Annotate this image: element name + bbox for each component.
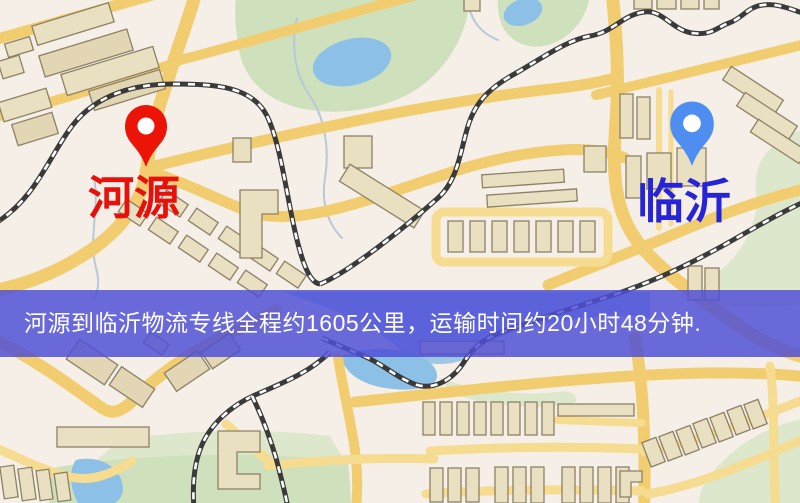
origin-city-label: 河源 (88, 175, 180, 221)
destination-city-label: 临沂 (637, 178, 731, 225)
route-info-banner: 河源到临沂物流专线全程约1605公里，运输时间约20小时48分钟. (0, 290, 800, 357)
map-canvas (0, 0, 800, 503)
map-view: 河源 临沂 河源到临沂物流专线全程约1605公里，运输时间约20小时48分钟. (0, 0, 800, 503)
